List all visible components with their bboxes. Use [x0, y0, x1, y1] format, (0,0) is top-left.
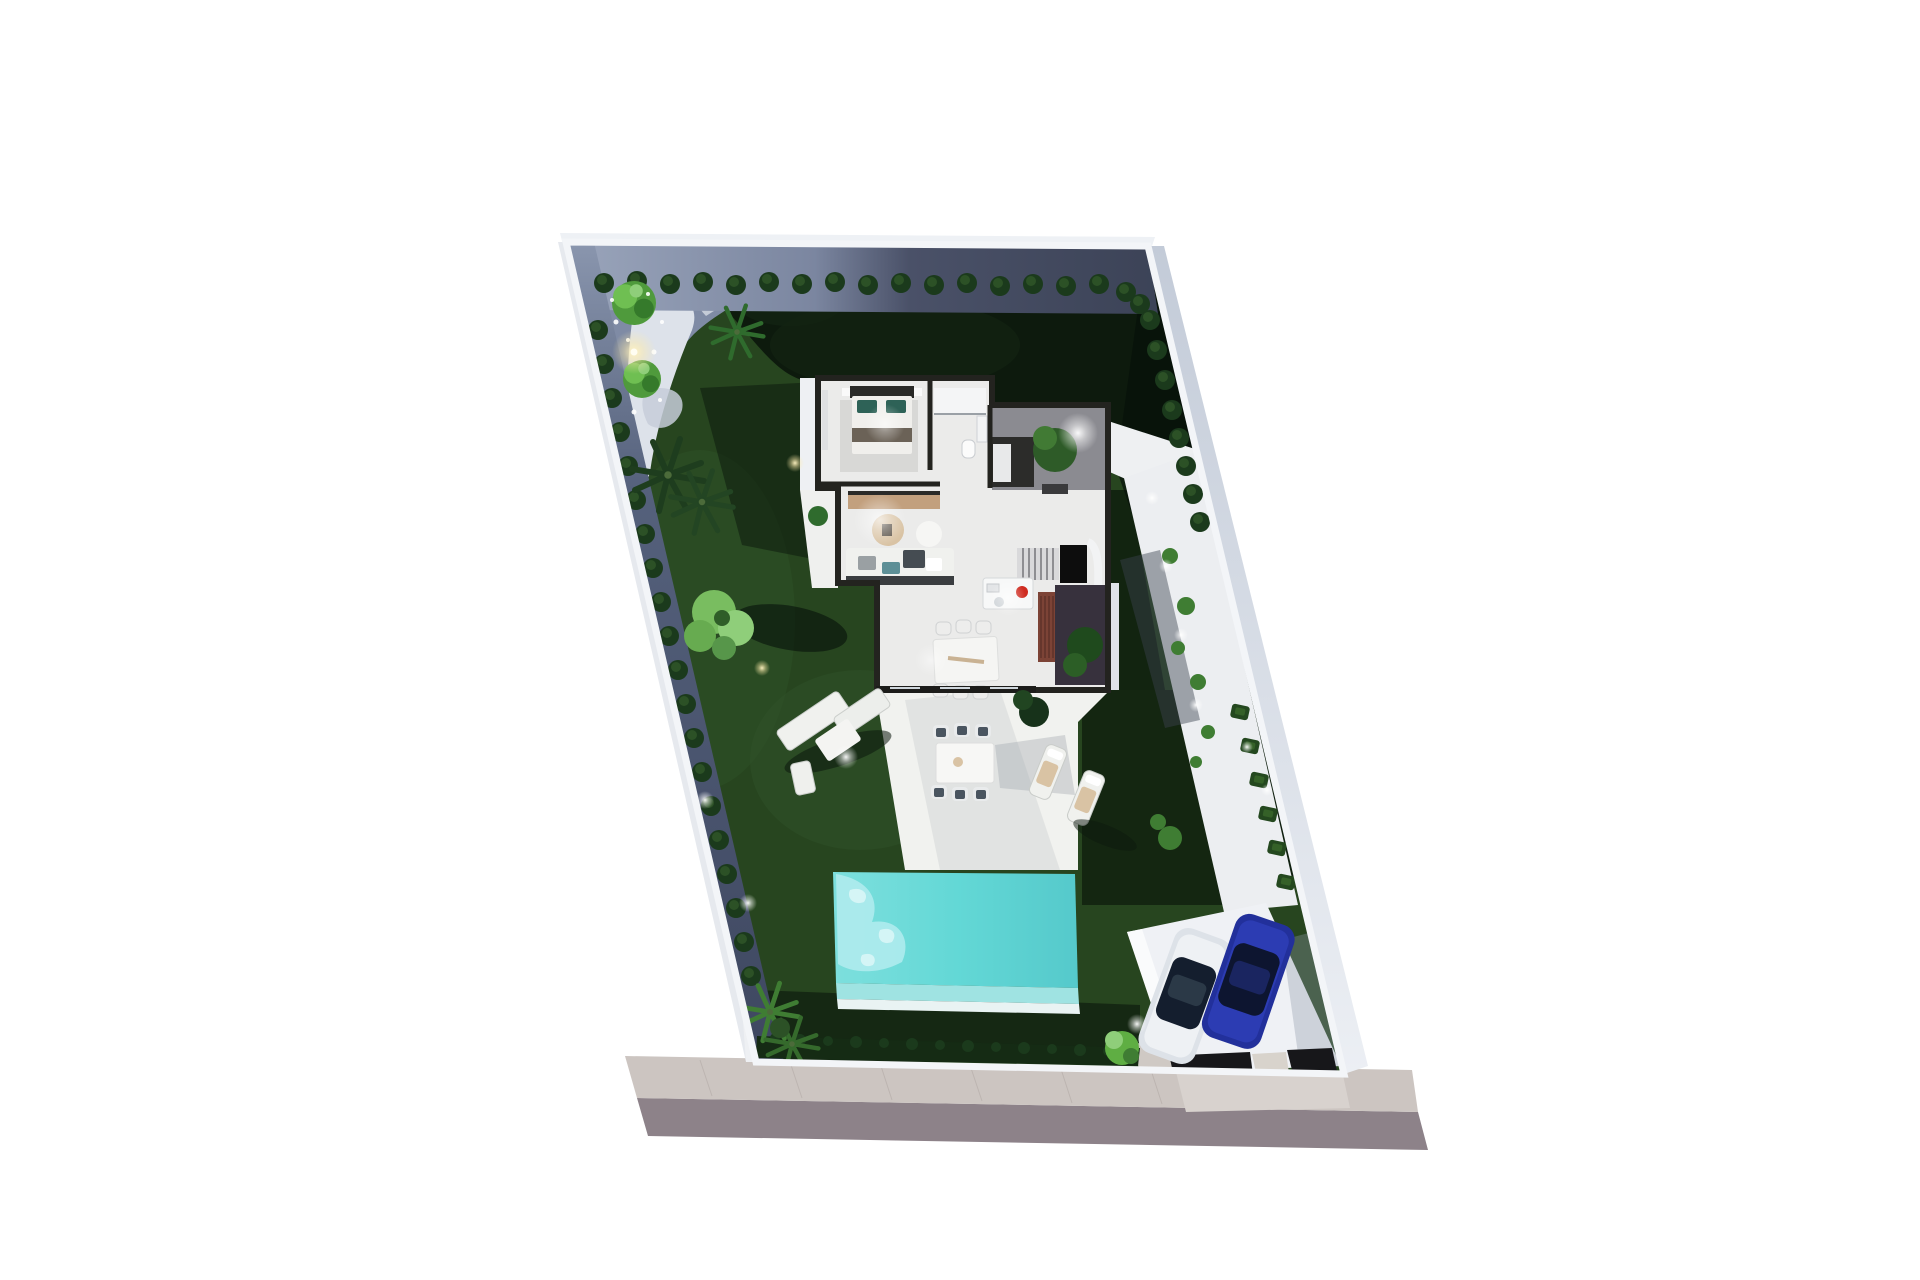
plot	[560, 236, 1360, 1086]
tv	[848, 491, 940, 495]
site-plan-render	[0, 0, 1920, 1280]
shower	[934, 388, 986, 414]
indoor-plant	[808, 506, 828, 526]
outdoor-chair	[931, 785, 947, 799]
table-centerpiece	[953, 757, 963, 767]
nightstand	[842, 388, 850, 396]
garden-tree	[612, 281, 656, 325]
entry-porch	[988, 408, 1105, 494]
nightstand	[914, 388, 922, 396]
courtyard-plant	[1063, 653, 1087, 677]
sofa-pillow-gray	[858, 556, 876, 570]
site-plan-svg	[0, 0, 1920, 1280]
facade-light	[786, 454, 804, 472]
dining-chairs-top	[936, 620, 991, 635]
toilet	[962, 440, 975, 458]
outdoor-chair	[952, 787, 968, 801]
grass-light	[754, 660, 770, 676]
bedroom-window-sill	[822, 390, 828, 450]
outdoor-chair	[973, 787, 989, 801]
swimming-pool	[833, 872, 1080, 1014]
outdoor-chair	[933, 725, 949, 739]
garden-lamp	[631, 349, 638, 356]
side-table	[916, 521, 942, 547]
porch-light-glow	[1058, 413, 1098, 453]
outdoor-chair	[975, 724, 991, 738]
stair-void	[1060, 545, 1087, 583]
door-mat	[1042, 484, 1068, 494]
terrace-dark-plant	[1013, 690, 1033, 710]
outdoor-chair	[954, 723, 970, 737]
vanity	[977, 416, 987, 442]
sofa-pillow-white	[926, 558, 942, 571]
porch-plant	[1033, 426, 1057, 450]
outdoor-dining-table	[936, 743, 994, 783]
sofa-pillow-dark	[903, 550, 925, 568]
carport-tree-light	[1127, 1014, 1147, 1034]
entry-door	[993, 444, 1011, 482]
sofa-pillow-teal	[882, 562, 900, 574]
